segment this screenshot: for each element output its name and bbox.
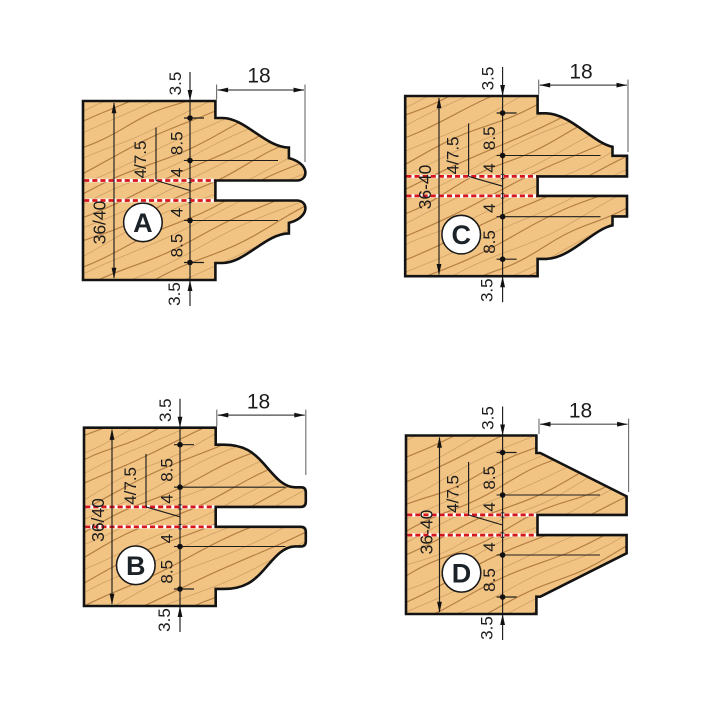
svg-text:4: 4 xyxy=(167,168,186,177)
svg-text:8.5: 8.5 xyxy=(157,560,176,584)
svg-text:4: 4 xyxy=(157,534,176,543)
svg-text:4: 4 xyxy=(157,494,176,503)
svg-text:18: 18 xyxy=(247,65,270,88)
svg-text:8.5: 8.5 xyxy=(157,458,176,482)
svg-text:36-40: 36-40 xyxy=(415,164,435,209)
svg-text:3.5: 3.5 xyxy=(479,67,498,91)
svg-text:8.5: 8.5 xyxy=(167,131,186,155)
svg-text:4: 4 xyxy=(480,204,499,213)
svg-text:18: 18 xyxy=(569,399,592,422)
svg-text:3.5: 3.5 xyxy=(479,406,498,430)
svg-text:18: 18 xyxy=(247,391,270,414)
svg-text:8.5: 8.5 xyxy=(480,230,499,254)
svg-text:3.5: 3.5 xyxy=(155,608,174,632)
svg-text:3.5: 3.5 xyxy=(156,398,175,422)
svg-text:8.5: 8.5 xyxy=(480,126,499,150)
svg-text:36-40: 36-40 xyxy=(417,509,437,554)
svg-text:3.5: 3.5 xyxy=(166,72,185,96)
svg-text:4: 4 xyxy=(480,163,499,172)
svg-text:4/7.5: 4/7.5 xyxy=(444,475,463,513)
svg-text:4/7.5: 4/7.5 xyxy=(131,141,150,179)
svg-text:C: C xyxy=(451,220,471,250)
svg-text:8.5: 8.5 xyxy=(480,568,499,592)
svg-text:4/7.5: 4/7.5 xyxy=(444,136,463,174)
svg-text:4: 4 xyxy=(167,208,186,217)
svg-text:4: 4 xyxy=(480,502,499,511)
svg-text:A: A xyxy=(133,208,153,238)
svg-text:3.5: 3.5 xyxy=(165,282,184,306)
svg-text:4/7.5: 4/7.5 xyxy=(121,467,140,505)
svg-text:B: B xyxy=(126,551,146,581)
svg-text:8.5: 8.5 xyxy=(480,466,499,490)
svg-text:8.5: 8.5 xyxy=(167,234,186,258)
svg-text:36/40: 36/40 xyxy=(88,498,108,542)
svg-text:36/40: 36/40 xyxy=(90,200,110,244)
svg-text:3.5: 3.5 xyxy=(478,616,497,640)
svg-text:3.5: 3.5 xyxy=(478,278,497,302)
svg-text:D: D xyxy=(452,558,472,588)
svg-text:18: 18 xyxy=(569,60,592,83)
svg-text:4: 4 xyxy=(480,542,499,551)
